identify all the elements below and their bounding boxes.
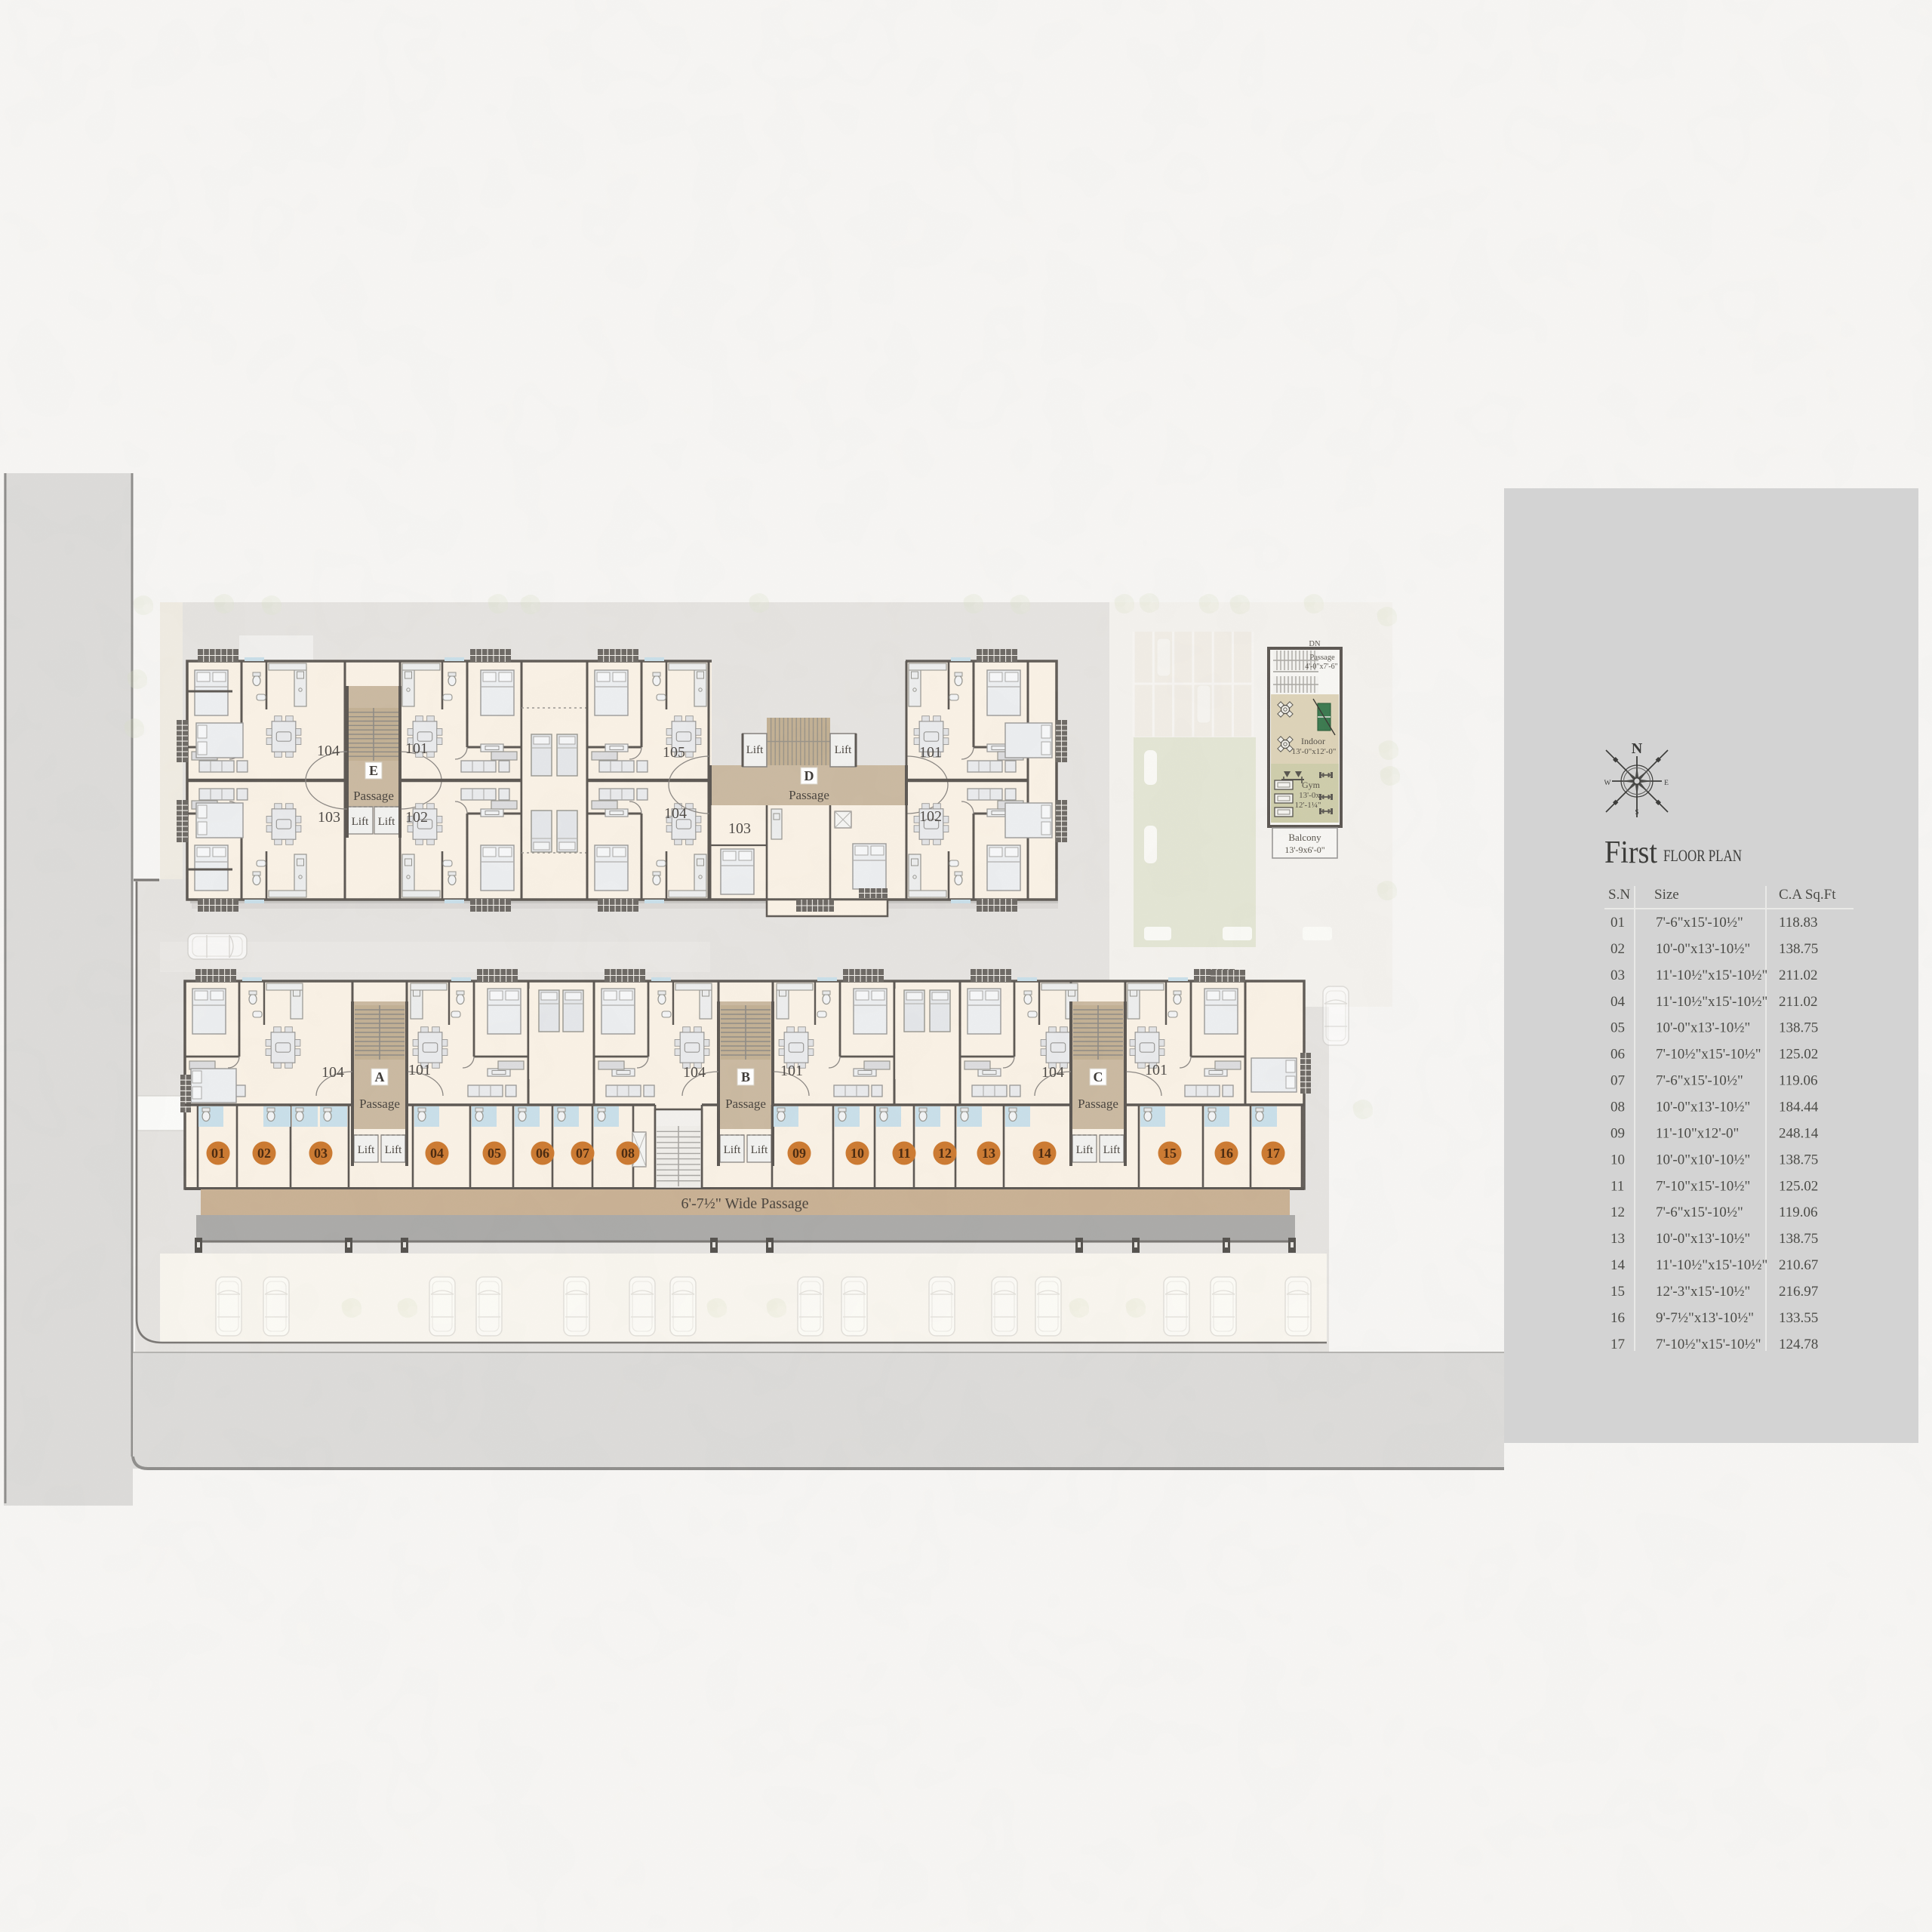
svg-text:10'-0"x13'-10½": 10'-0"x13'-10½" <box>1656 1020 1750 1036</box>
svg-text:N: N <box>1632 740 1643 757</box>
svg-text:10'-0"x13'-10½": 10'-0"x13'-10½" <box>1656 941 1750 957</box>
svg-text:02: 02 <box>1611 941 1625 957</box>
svg-text:138.75: 138.75 <box>1779 1020 1818 1036</box>
svg-text:12: 12 <box>1611 1204 1625 1220</box>
svg-text:04: 04 <box>1611 994 1626 1010</box>
svg-text:16: 16 <box>1611 1310 1625 1326</box>
svg-text:118.83: 118.83 <box>1779 915 1818 931</box>
svg-text:10: 10 <box>1611 1152 1625 1168</box>
svg-text:7'-6"x15'-10½": 7'-6"x15'-10½" <box>1656 1073 1743 1089</box>
svg-text:210.67: 210.67 <box>1779 1257 1818 1273</box>
svg-text:138.75: 138.75 <box>1779 1231 1818 1247</box>
svg-text:11'-10½"x15'-10½": 11'-10½"x15'-10½" <box>1656 968 1767 983</box>
svg-text:11'-10"x12'-0": 11'-10"x12'-0" <box>1656 1125 1739 1141</box>
svg-text:S: S <box>1635 809 1638 817</box>
svg-text:248.14: 248.14 <box>1779 1125 1819 1141</box>
svg-text:FLOOR PLAN: FLOOR PLAN <box>1663 846 1742 865</box>
svg-text:C.A Sq.Ft: C.A Sq.Ft <box>1779 887 1836 903</box>
svg-text:124.78: 124.78 <box>1779 1337 1818 1352</box>
svg-text:10'-0"x13'-10½": 10'-0"x13'-10½" <box>1656 1100 1750 1115</box>
svg-text:7'-10½"x15'-10½": 7'-10½"x15'-10½" <box>1656 1047 1761 1063</box>
svg-text:11'-10½"x15'-10½": 11'-10½"x15'-10½" <box>1656 994 1767 1010</box>
svg-text:211.02: 211.02 <box>1779 968 1818 983</box>
svg-text:First: First <box>1604 835 1657 870</box>
svg-text:7'-10½"x15'-10½": 7'-10½"x15'-10½" <box>1656 1337 1761 1352</box>
svg-text:7'-6"x15'-10½": 7'-6"x15'-10½" <box>1656 1204 1743 1220</box>
svg-text:W: W <box>1604 780 1611 787</box>
svg-text:15: 15 <box>1611 1284 1625 1300</box>
svg-text:09: 09 <box>1611 1125 1625 1141</box>
svg-text:119.06: 119.06 <box>1779 1073 1818 1089</box>
svg-text:7'-6"x15'-10½": 7'-6"x15'-10½" <box>1656 915 1743 931</box>
svg-text:216.97: 216.97 <box>1779 1284 1818 1300</box>
svg-text:07: 07 <box>1611 1073 1625 1089</box>
svg-text:184.44: 184.44 <box>1779 1100 1819 1115</box>
svg-text:211.02: 211.02 <box>1779 994 1818 1010</box>
svg-text:125.02: 125.02 <box>1779 1178 1818 1194</box>
svg-text:119.06: 119.06 <box>1779 1204 1818 1220</box>
svg-text:08: 08 <box>1611 1100 1625 1115</box>
svg-text:Size: Size <box>1654 887 1679 903</box>
svg-text:06: 06 <box>1611 1047 1625 1063</box>
svg-text:13: 13 <box>1611 1231 1625 1247</box>
svg-text:01: 01 <box>1611 915 1625 931</box>
svg-text:03: 03 <box>1611 968 1625 983</box>
svg-text:10'-0"x13'-10½": 10'-0"x13'-10½" <box>1656 1231 1750 1247</box>
svg-text:05: 05 <box>1611 1020 1625 1036</box>
svg-text:138.75: 138.75 <box>1779 1152 1818 1168</box>
svg-text:11'-10½"x15'-10½": 11'-10½"x15'-10½" <box>1656 1257 1767 1273</box>
svg-text:10'-0"x10'-10½": 10'-0"x10'-10½" <box>1656 1152 1750 1168</box>
svg-text:138.75: 138.75 <box>1779 941 1818 957</box>
svg-text:7'-10"x15'-10½": 7'-10"x15'-10½" <box>1656 1178 1750 1194</box>
svg-text:133.55: 133.55 <box>1779 1310 1818 1326</box>
svg-text:11: 11 <box>1611 1178 1624 1194</box>
svg-text:9'-7½"x13'-10½": 9'-7½"x13'-10½" <box>1656 1310 1754 1326</box>
svg-text:17: 17 <box>1611 1337 1625 1352</box>
svg-text:S.N: S.N <box>1608 887 1630 903</box>
svg-text:125.02: 125.02 <box>1779 1047 1818 1063</box>
svg-text:14: 14 <box>1611 1257 1626 1273</box>
svg-text:12'-3"x15'-10½": 12'-3"x15'-10½" <box>1656 1284 1750 1300</box>
svg-text:E: E <box>1664 780 1669 787</box>
